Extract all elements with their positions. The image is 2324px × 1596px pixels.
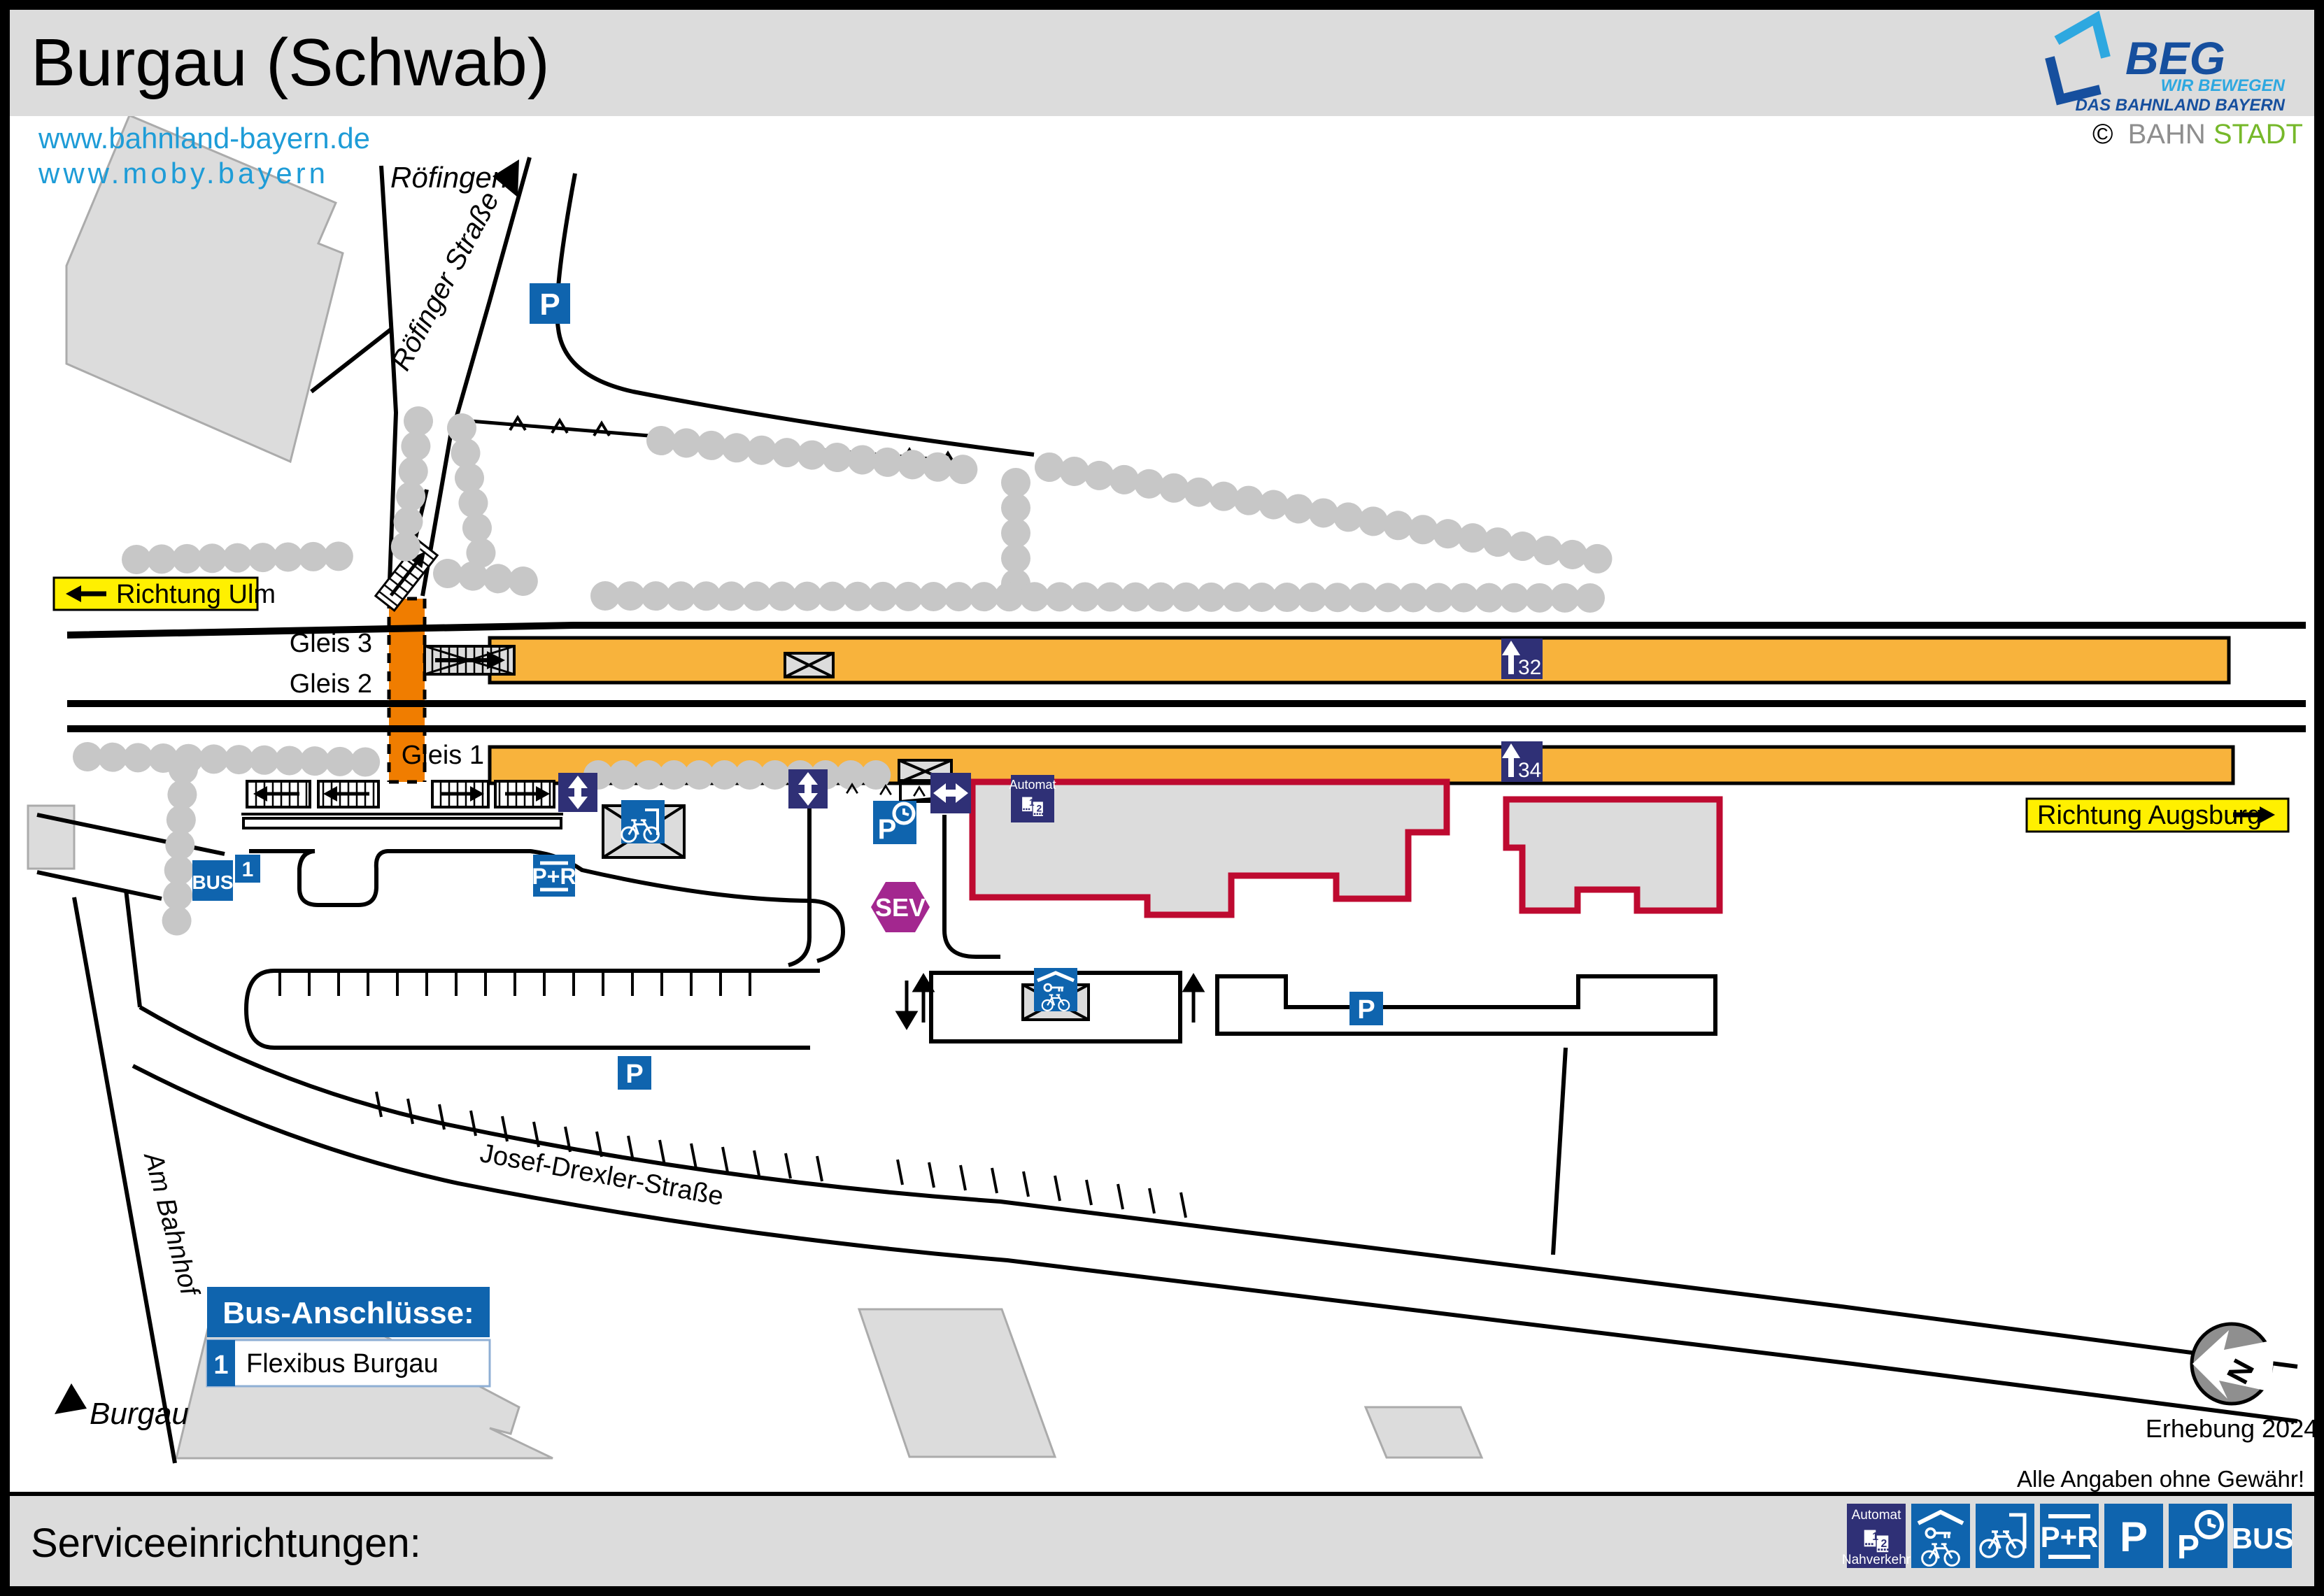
bus-line-number-badge: 1 [242,858,254,881]
legend-parking-icon: P [2104,1504,2163,1568]
legend-bus-icon: BUS [2232,1504,2294,1568]
street-label-am-bahnhof: Am Bahnhof [138,1148,205,1301]
leftright-arrow-icon [930,773,971,813]
ticket-machine-map-label: Automat [1009,778,1056,792]
place-label-roefingen: Röfingen [390,161,508,194]
ramp-east-1 [432,781,488,807]
direction-sign-augsburg: Richtung Augsburg [2027,799,2288,832]
ramp-west-1 [247,781,310,807]
platform-sign-34: 34 [1501,741,1543,782]
road-roefinger-strasse-left-edge [381,166,396,600]
updown-arrow-icon-west [558,773,597,812]
beg-tagline-2: DAS BAHNLAND BAYERN [2075,96,2285,115]
sev-rail-replacement-icon: SEV [871,882,930,932]
trees-path-west [404,421,418,560]
parking-lots [246,971,1715,1048]
platform-sign-34-label: 34 [1518,759,1541,782]
bus-line-name: Flexibus Burgau [246,1349,439,1378]
place-label-burgau: Burgau [90,1397,189,1431]
park-ride-icon-map: P+R [532,855,576,897]
building-south-center [859,1309,1055,1457]
trees-path-bottom [448,573,530,582]
bus-connections-box: Bus-Anschlüsse: 1 Flexibus Burgau [207,1287,490,1386]
street-label-josef-drexler: Josef-Drexler-Straße [478,1139,725,1211]
hedge-west-platform [87,757,383,762]
ramp-east-2 [495,781,554,807]
link-bahnland-bayern[interactable]: www.bahnland-bayern.de [38,122,370,155]
short-term-parking-map-label: P [878,814,897,845]
updown-arrow-icon-center [788,769,828,808]
footer-title: Serviceeinrichtungen: [31,1520,421,1566]
parking-icon-east: P [1349,992,1383,1025]
hedge-west-of-crossing [136,556,353,560]
direction-sign-augsburg-label: Richtung Augsburg [2037,801,2262,830]
bahnstadt-credit: © BAHN STADT [2092,119,2303,150]
park-ride-icon-map-label: P+R [532,864,576,889]
legend-bike-shelter-lockable-icon [1911,1504,1970,1568]
platform-sign-32: 32 [1501,639,1543,679]
station-building-east [1506,799,1720,911]
legend-park-ride-icon: P+R [2040,1504,2099,1568]
legend-bus-label: BUS [2232,1522,2294,1555]
parking-icon-mid-label: P [625,1060,643,1089]
parking-icon-mid: P [618,1056,651,1090]
hedge-northeast-diagonal [1049,467,1602,560]
platform-sign-32-label: 32 [1518,656,1541,679]
hedge-west-column [176,769,183,930]
legend-parking-label: P [2120,1513,2148,1560]
survey-year-label: Erhebung 2024 [2146,1414,2318,1443]
legend-short-term-parking-icon: P [2169,1504,2227,1568]
parking-lot-west-outline [246,971,820,1048]
ticket-machine-icon-map: Automat [1009,775,1056,822]
parking-lot-east-outline [1217,976,1715,1034]
disclaimer-text: Alle Angaben ohne Gewähr! [2017,1466,2304,1492]
bus-stop-icon-label: BUS [192,871,233,893]
copyright-symbol: © [2092,119,2113,150]
bike-shelter-lockable-icon-map [1034,968,1077,1011]
retaining-wall [243,818,561,828]
legend-ticket-machine-icon: Automat Nahverkehr [1842,1504,1911,1568]
legend-park-ride-label: P+R [2041,1520,2099,1553]
road-north-curve [557,173,1034,455]
road-west-approach-lower [37,872,162,899]
page-title: Burgau (Schwab) [31,25,550,100]
south-destination-arrow-icon [55,1383,87,1414]
bus-stop-icon: BUS 1 [192,855,260,901]
road-parking-spur [1553,1048,1566,1255]
bus-line-badge: 1 [213,1351,228,1380]
sev-icon-label: SEV [875,893,926,922]
direction-sign-ulm: Richtung Ulm [54,578,276,610]
trees-path-east [462,428,484,573]
station-map-page: 1 2 [0,0,2324,1596]
bahnstadt-green: STADT [2213,119,2303,150]
building-west-edge [28,806,74,869]
beg-tagline-1: WIR BEWEGEN [2161,76,2286,95]
hedge-north-fenced [661,441,969,470]
west-access-ramps [241,781,563,828]
island-platform-shelter [785,653,833,677]
ramp-west-2 [318,781,378,807]
legend-bike-stand-icon [1976,1504,2034,1568]
legend-short-term-parking-label: P [2177,1529,2199,1566]
label-gleis3: Gleis 3 [290,629,372,658]
parking-icon-north-label: P [539,287,560,322]
island-platform-ramp [425,646,514,674]
parking-stall-ticks-west-lot [280,972,750,996]
road-am-bahnhof-right-edge [126,890,140,1007]
bahnstadt-gray: BAHN [2128,119,2206,150]
road-branch-to-building [311,329,392,392]
forecourt-walk-west-edge [788,783,809,965]
building-south-east [1366,1407,1482,1458]
parking-icon-north: P [530,283,570,324]
station-buildings [972,782,1720,915]
direction-sign-ulm-label: Richtung Ulm [116,580,276,609]
legend-automat-bottom-label: Nahverkehr [1842,1553,1911,1567]
short-term-parking-icon-map: P [873,801,916,845]
legend-automat-top-label: Automat [1852,1508,1901,1523]
link-moby-bayern[interactable]: www.moby.bayern [38,157,329,190]
bike-stand-icon-map [621,800,665,843]
compass: N Erhebung 2024 [2146,1324,2318,1443]
parking-icon-east-label: P [1357,995,1375,1025]
bus-connections-title: Bus-Anschlüsse: [222,1296,474,1330]
island-platform [490,638,2229,683]
hedge-along-track [605,596,1599,598]
street-label-roefinger-strasse: Röfinger Straße [385,187,505,376]
label-gleis2: Gleis 2 [290,669,372,699]
label-gleis1: Gleis 1 [402,741,484,770]
